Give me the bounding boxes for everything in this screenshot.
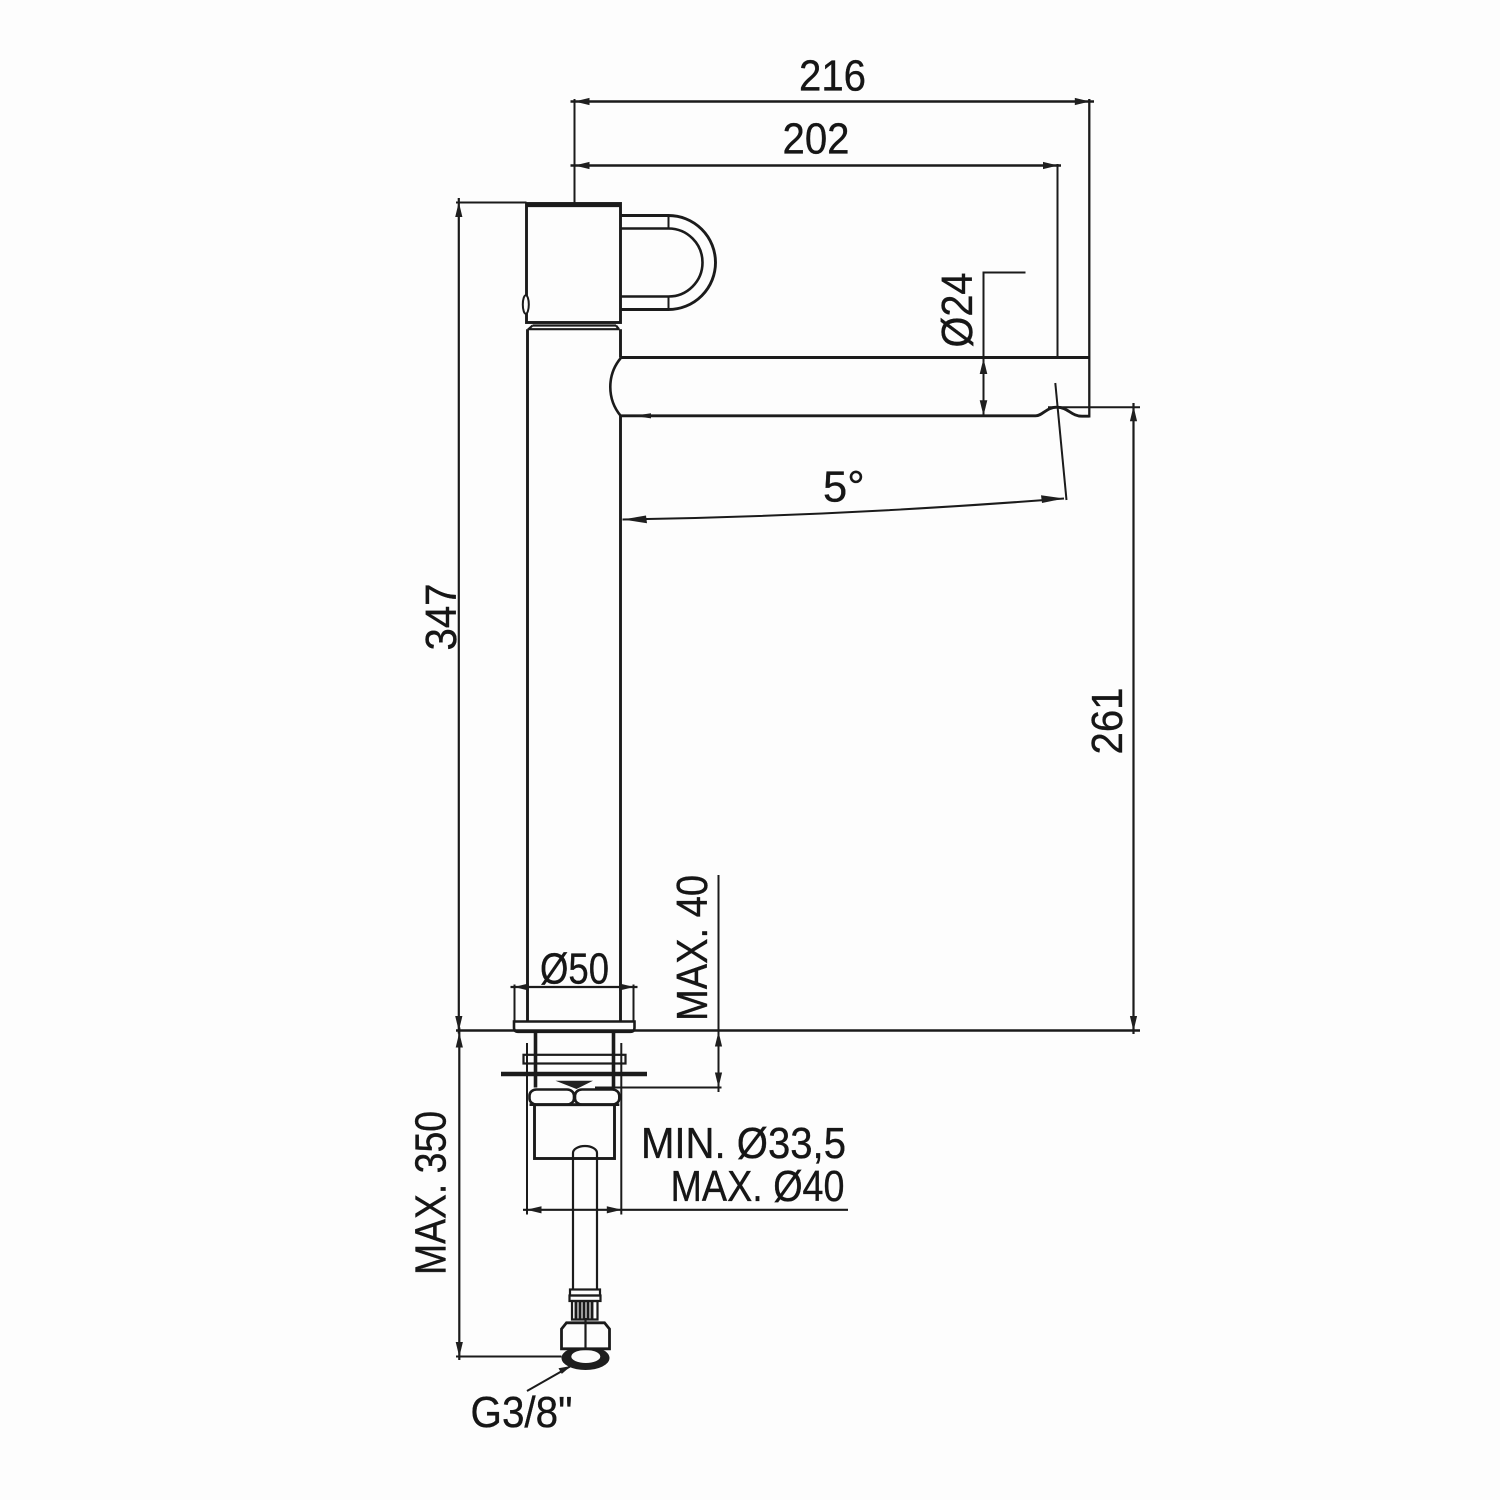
svg-text:MAX. 40: MAX. 40	[669, 875, 717, 1021]
svg-text:261: 261	[1084, 688, 1132, 755]
svg-text:Ø24: Ø24	[934, 273, 982, 348]
svg-text:Ø50: Ø50	[540, 946, 609, 994]
svg-text:5°: 5°	[823, 464, 865, 512]
svg-text:MIN. Ø33,5: MIN. Ø33,5	[641, 1120, 846, 1168]
svg-text:G3/8": G3/8"	[471, 1389, 573, 1437]
svg-text:202: 202	[783, 116, 850, 164]
svg-text:216: 216	[799, 53, 866, 101]
svg-text:347: 347	[418, 584, 466, 651]
svg-text:MAX. 350: MAX. 350	[408, 1111, 456, 1275]
svg-text:MAX. Ø40: MAX. Ø40	[671, 1163, 845, 1211]
